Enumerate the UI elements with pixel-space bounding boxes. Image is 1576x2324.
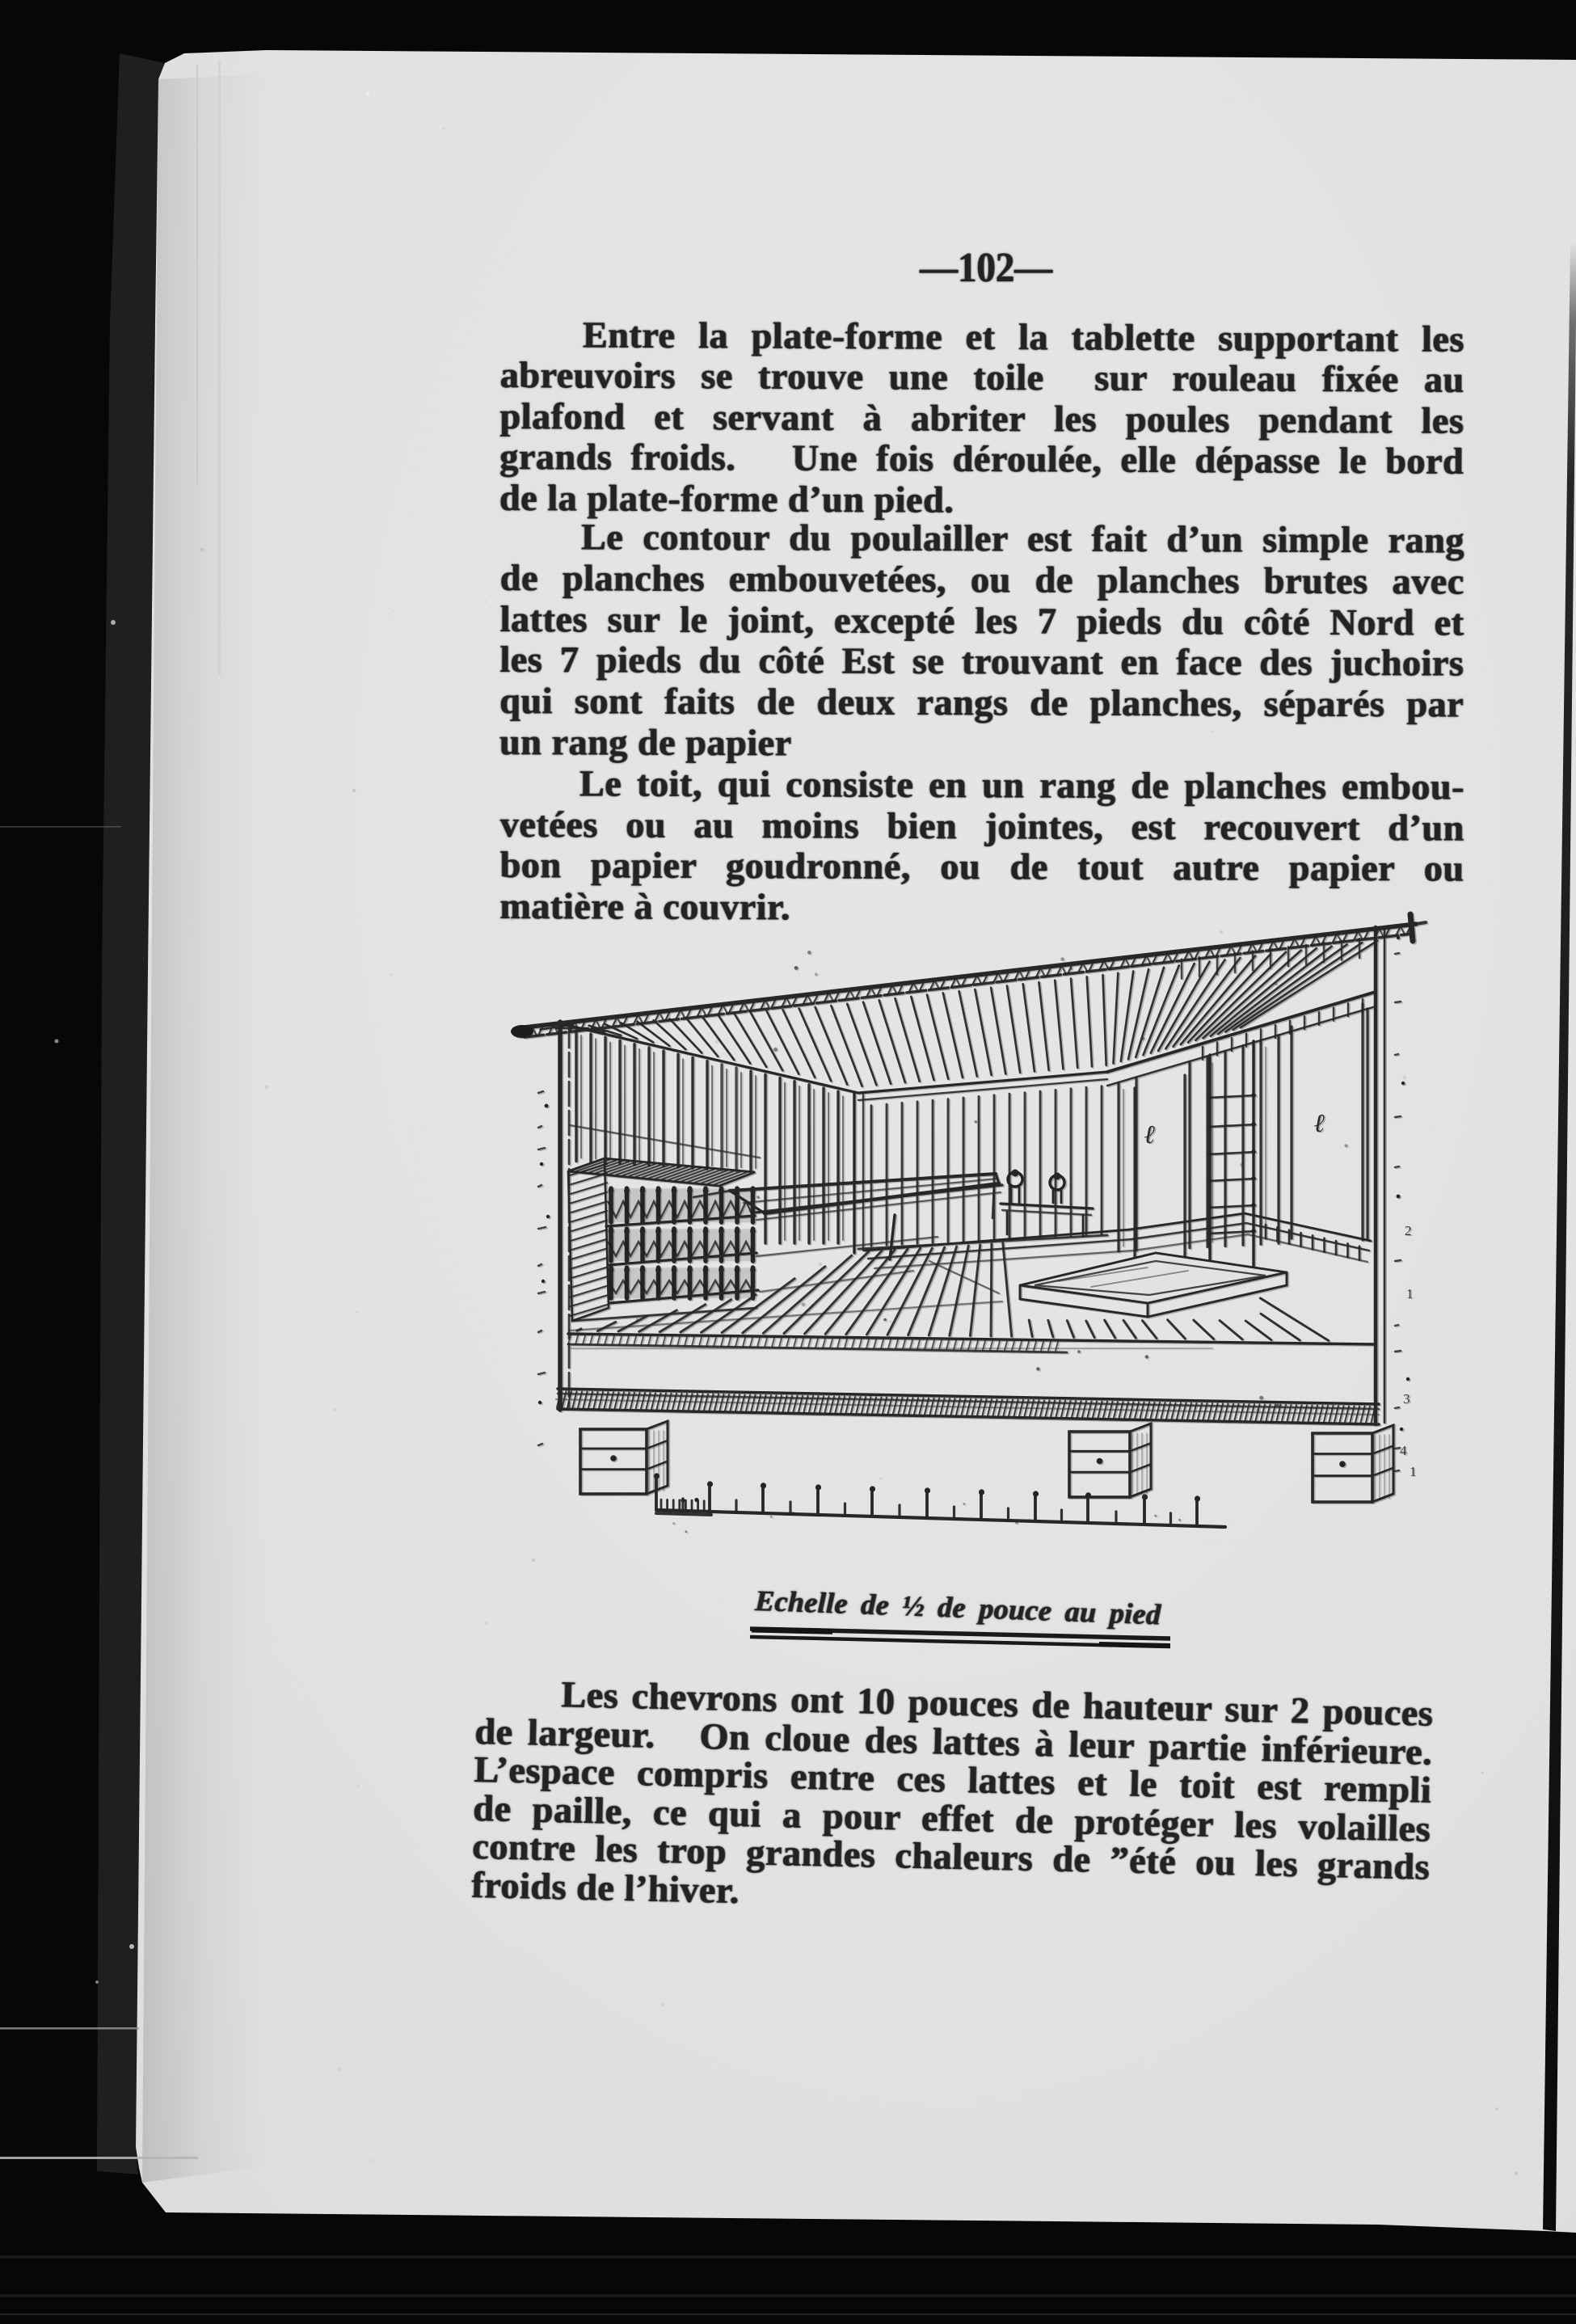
svg-text:ℓ: ℓ xyxy=(1314,1108,1325,1137)
svg-text:3: 3 xyxy=(1403,1391,1410,1407)
svg-text:2: 2 xyxy=(1405,1223,1412,1238)
svg-text:1: 1 xyxy=(1406,1286,1414,1301)
svg-text:4: 4 xyxy=(1400,1443,1407,1458)
svg-text:ℓ: ℓ xyxy=(1144,1120,1156,1149)
svg-text:1: 1 xyxy=(1410,1464,1417,1479)
